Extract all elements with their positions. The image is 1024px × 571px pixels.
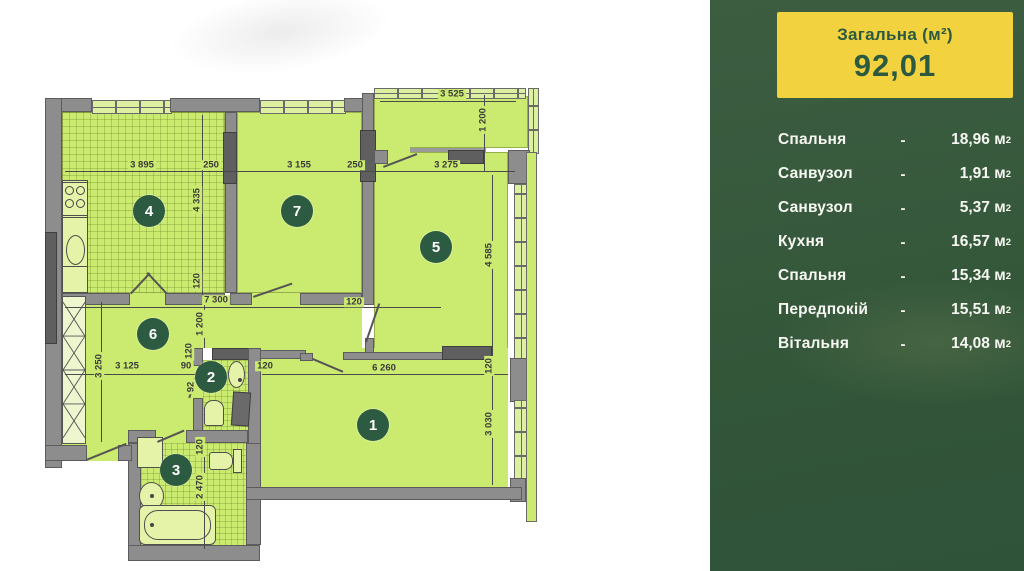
- window: [260, 100, 346, 114]
- sink-drain: [238, 378, 242, 382]
- dash: -: [883, 336, 923, 353]
- wall-stub: [374, 150, 388, 164]
- total-area-label: Загальна (м²): [777, 25, 1013, 45]
- dim-label: 3 030: [484, 410, 494, 438]
- room-name: Санвузол: [778, 165, 883, 183]
- room-name: Кухня: [778, 233, 883, 251]
- area-unit-sup: 2: [1006, 135, 1011, 146]
- dim-label: 3 155: [285, 160, 313, 170]
- room-area-row: Санвузол - 5,37 м2: [778, 191, 1011, 225]
- dim-label: 4 335: [192, 186, 202, 214]
- room-marker-5: 5: [420, 231, 452, 263]
- bathtub-drain: [150, 523, 154, 527]
- balcony-window-side: [528, 88, 539, 154]
- room-marker-6: 6: [137, 318, 169, 350]
- dash: -: [883, 302, 923, 319]
- stove-burner: [65, 199, 74, 208]
- dimension-line: [65, 171, 515, 172]
- dim-label: 120: [192, 271, 202, 291]
- summary-panel: Загальна (м²) 92,01 Спальня - 18,96 м2 С…: [710, 0, 1024, 571]
- area-unit: м: [994, 199, 1005, 216]
- room-area-row: Передпокій - 15,51 м2: [778, 293, 1011, 327]
- wall: [343, 352, 443, 360]
- facade-strip: [526, 152, 537, 522]
- dash: -: [883, 234, 923, 251]
- room-name: Вітальня: [778, 335, 883, 353]
- watermark: [155, 0, 404, 91]
- area-unit-sup: 2: [1006, 203, 1011, 214]
- dim-label: 7 300: [202, 295, 230, 305]
- dimension-line: [492, 175, 493, 485]
- room-area-row: Санвузол - 1,91 м2: [778, 157, 1011, 191]
- dim-label: 3 275: [432, 160, 460, 170]
- dim-label: 250: [201, 160, 221, 170]
- room-name: Передпокій: [778, 301, 883, 319]
- room-area-value: 14,08 м2: [923, 335, 1011, 353]
- dimension-line: [65, 307, 441, 308]
- dim-label: 120: [255, 361, 275, 371]
- wall: [170, 98, 260, 112]
- counter-line: [62, 266, 88, 267]
- room-area-row: Спальня - 15,34 м2: [778, 259, 1011, 293]
- sink-drain: [150, 494, 154, 498]
- dimension-line: [262, 374, 508, 375]
- room-marker-2: 2: [195, 361, 227, 393]
- area-number: 18,96: [951, 131, 990, 148]
- balcony-floor: [374, 96, 528, 148]
- area-number: 14,08: [951, 335, 990, 352]
- dim-label: 3 250: [94, 352, 104, 380]
- wall-dark-segment: [45, 232, 57, 344]
- dim-label: 3 895: [128, 160, 156, 170]
- room-marker-7: 7: [281, 195, 313, 227]
- dim-label: 3 125: [113, 361, 141, 371]
- stove-burner: [76, 186, 85, 195]
- dim-label: 90: [179, 361, 194, 371]
- area-unit-sup: 2: [1006, 339, 1011, 350]
- area-number: 16,57: [951, 233, 990, 250]
- dim-label: 250: [345, 160, 365, 170]
- total-area-box: Загальна (м²) 92,01: [777, 12, 1013, 98]
- area-unit-sup: 2: [1006, 169, 1011, 180]
- area-number: 15,34: [951, 267, 990, 284]
- apartment-plan-screen: 3 895 250 3 155 250 3 275 3 525 1 200 4 …: [0, 0, 1024, 571]
- wall: [230, 293, 252, 305]
- area-unit: м: [994, 301, 1005, 318]
- dim-label: 3 525: [438, 89, 466, 99]
- dim-label: 120: [484, 356, 494, 376]
- kitchen-sink-symbol: [66, 235, 85, 265]
- room-area-value: 1,91 м2: [923, 165, 1011, 183]
- area-unit-sup: 2: [1006, 237, 1011, 248]
- wall: [45, 445, 87, 461]
- room-name: Спальня: [778, 131, 883, 149]
- room-1-door-opening: [313, 348, 343, 360]
- room-area-value: 16,57 м2: [923, 233, 1011, 251]
- total-area-value: 92,01: [777, 48, 1013, 84]
- dash: -: [883, 166, 923, 183]
- shaft-x-bracing: [62, 296, 86, 444]
- dimension-line: [380, 101, 516, 102]
- wall-room1-bottom: [246, 487, 522, 500]
- stove-burner: [65, 186, 74, 195]
- dim-label: 4 585: [484, 241, 494, 269]
- room-area-value: 15,51 м2: [923, 301, 1011, 319]
- wall-tick: [300, 353, 313, 361]
- counter-line: [62, 217, 88, 218]
- area-unit: м: [994, 335, 1005, 352]
- area-unit-sup: 2: [1006, 271, 1011, 282]
- area-unit: м: [994, 165, 1005, 182]
- wall: [193, 398, 203, 432]
- room-marker-4: 4: [133, 195, 165, 227]
- room-area-row: Спальня - 18,96 м2: [778, 123, 1011, 157]
- room-area-value: 15,34 м2: [923, 267, 1011, 285]
- dim-label: 1 200: [195, 310, 205, 338]
- sink-symbol: [228, 361, 245, 388]
- room-area-list: Спальня - 18,96 м2 Санвузол - 1,91 м2 Са…: [778, 123, 1011, 361]
- dash: -: [883, 268, 923, 285]
- wall-room3-bottom: [128, 545, 260, 561]
- area-number: 15,51: [951, 301, 990, 318]
- room-area-row: Вітальня - 14,08 м2: [778, 327, 1011, 361]
- stove-burner: [76, 199, 85, 208]
- area-unit: м: [994, 267, 1005, 284]
- dim-label: 120: [184, 341, 194, 361]
- dim-label: 2 470: [195, 473, 205, 501]
- dash: -: [883, 132, 923, 149]
- wall: [118, 445, 132, 461]
- floor-plan: 3 895 250 3 155 250 3 275 3 525 1 200 4 …: [0, 0, 710, 571]
- area-unit-sup: 2: [1006, 305, 1011, 316]
- area-unit: м: [994, 131, 1005, 148]
- dash: -: [883, 200, 923, 217]
- room-marker-1: 1: [357, 409, 389, 441]
- area-unit: м: [994, 233, 1005, 250]
- wall-room7-room5: [362, 93, 374, 305]
- wall-pilaster: [223, 132, 237, 184]
- room-area-row: Кухня - 16,57 м2: [778, 225, 1011, 259]
- kitchen-door-opening: [130, 293, 165, 305]
- toilet-symbol: [204, 400, 224, 426]
- washing-machine-symbol: [231, 391, 251, 426]
- toilet-tank: [233, 449, 242, 473]
- room-name: Спальня: [778, 267, 883, 285]
- dim-label: 92: [186, 380, 196, 395]
- dim-label: 6 260: [370, 363, 398, 373]
- dim-label: 120: [195, 437, 205, 457]
- room-marker-3: 3: [160, 454, 192, 486]
- dim-label: 120: [344, 297, 364, 307]
- room-area-value: 5,37 м2: [923, 199, 1011, 217]
- dimension-line: [65, 374, 195, 375]
- dim-label: 1 200: [478, 106, 488, 134]
- room-area-value: 18,96 м2: [923, 131, 1011, 149]
- window: [92, 100, 172, 114]
- toilet-symbol: [209, 452, 233, 470]
- room-name: Санвузол: [778, 199, 883, 217]
- bathtub-inner: [144, 510, 211, 540]
- area-number: 5,37: [960, 199, 990, 216]
- area-number: 1,91: [960, 165, 990, 182]
